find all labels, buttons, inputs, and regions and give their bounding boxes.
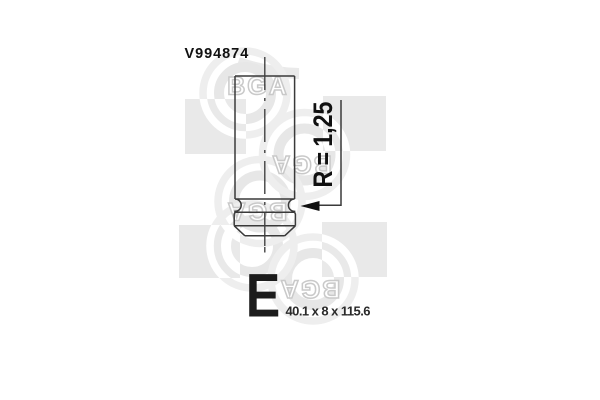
- svg-text:BGA: BGA: [279, 275, 341, 303]
- svg-text:R = 1,25: R = 1,25: [308, 102, 338, 188]
- svg-text:V994874: V994874: [185, 46, 250, 62]
- svg-text:40.1 x 8 x 115.6: 40.1 x 8 x 115.6: [286, 304, 371, 319]
- svg-text:E: E: [246, 262, 280, 330]
